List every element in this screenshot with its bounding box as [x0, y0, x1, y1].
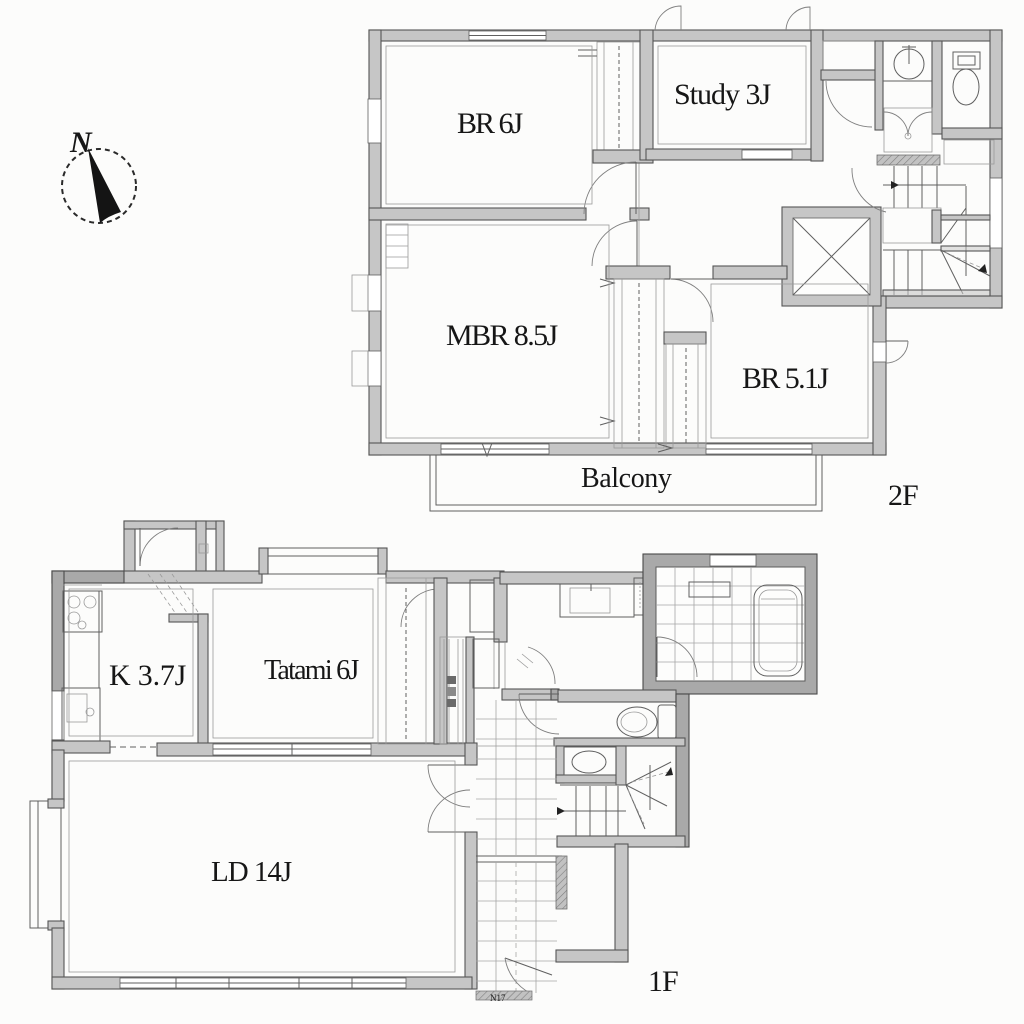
svg-text:N: N: [69, 126, 93, 159]
svg-text:MBR 8.5J: MBR 8.5J: [446, 319, 558, 352]
svg-text:Tatami 6J: Tatami 6J: [264, 655, 359, 686]
svg-text:BR 5.1J: BR 5.1J: [742, 362, 829, 395]
svg-text:BR 6J: BR 6J: [457, 107, 524, 140]
svg-text:Study 3J: Study 3J: [674, 78, 772, 111]
svg-text:K 3.7J: K 3.7J: [109, 659, 187, 692]
svg-text:N17: N17: [490, 993, 506, 1003]
svg-text:2F: 2F: [888, 479, 918, 512]
svg-text:LD 14J: LD 14J: [211, 856, 292, 888]
svg-text:1F: 1F: [648, 965, 678, 998]
svg-text:Balcony: Balcony: [581, 463, 672, 494]
